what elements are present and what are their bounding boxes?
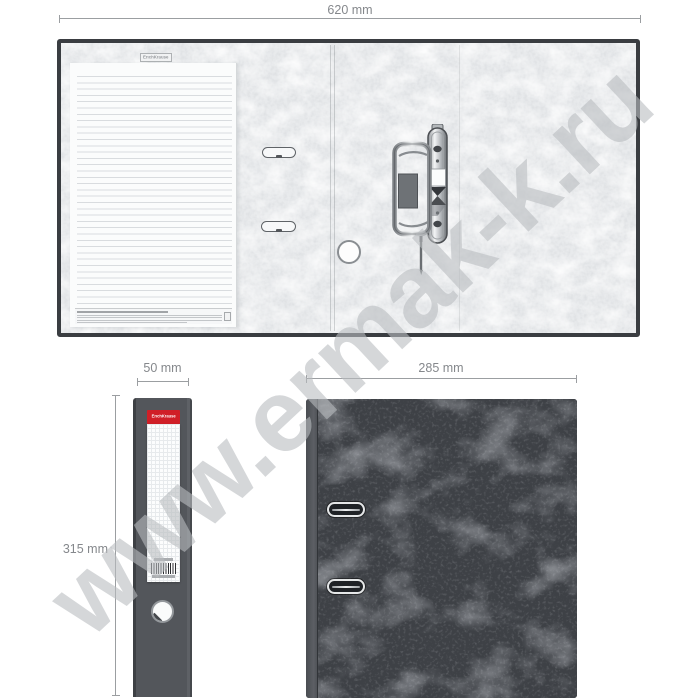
product-dimension-diagram: 620 mm ErichKrause — [0, 0, 700, 700]
eyelet-tongue — [332, 509, 360, 511]
ruled-lines — [77, 76, 232, 306]
dimension-open-width-label: 620 mm — [310, 3, 390, 17]
dimension-open-width-line — [59, 18, 641, 19]
finger-hole-notch — [151, 613, 162, 623]
dimension-cover-width-label: 285 mm — [401, 361, 481, 375]
dimension-spine-width-line — [137, 381, 189, 382]
dimension-spine-width-label: 50 mm — [133, 361, 192, 375]
marble-texture — [318, 399, 577, 698]
lever-arch-mechanism — [391, 124, 451, 276]
finger-hole — [337, 240, 361, 264]
brand-stamp-text: ErichKrause — [143, 55, 168, 59]
paper-footer-fine-print — [75, 308, 232, 324]
metal-eyelet-slot — [327, 579, 365, 594]
metal-eyelet-slot — [327, 502, 365, 517]
spine-side-view: ErichKrause — [133, 398, 192, 697]
eyelet-tongue — [332, 586, 360, 588]
spine-crease-line — [330, 45, 331, 331]
front-cover-view — [306, 399, 577, 698]
dimension-height-line — [115, 395, 116, 696]
cover-grip-slot — [261, 221, 296, 232]
fine-print-line — [77, 320, 222, 321]
dimension-cover-width-line — [306, 378, 577, 379]
spine-paper-label — [147, 424, 180, 582]
spine-brand-label-text: ErichKrause — [151, 415, 175, 419]
spine-crease-line — [459, 45, 460, 331]
open-binder-top-view: ErichKrause — [57, 39, 640, 337]
spine-crease-line — [334, 45, 335, 331]
footer-stamp-box — [224, 312, 231, 321]
brand-stamp: ErichKrause — [140, 53, 172, 62]
finger-hole — [151, 600, 174, 623]
cover-spine-strip — [306, 399, 318, 698]
barcode-icon — [151, 563, 176, 574]
fine-print-line — [77, 315, 222, 316]
barcode-caption-bottom — [152, 575, 175, 578]
fine-print-line — [77, 311, 168, 313]
fine-print-line — [77, 322, 187, 323]
cover-grip-slot — [262, 147, 296, 158]
barcode-caption-top — [154, 558, 173, 561]
fine-print-line — [77, 317, 222, 318]
spine-brand-label: ErichKrause — [147, 410, 180, 424]
paper-insert-sheet — [70, 63, 237, 327]
dimension-height-label: 315 mm — [62, 542, 108, 556]
